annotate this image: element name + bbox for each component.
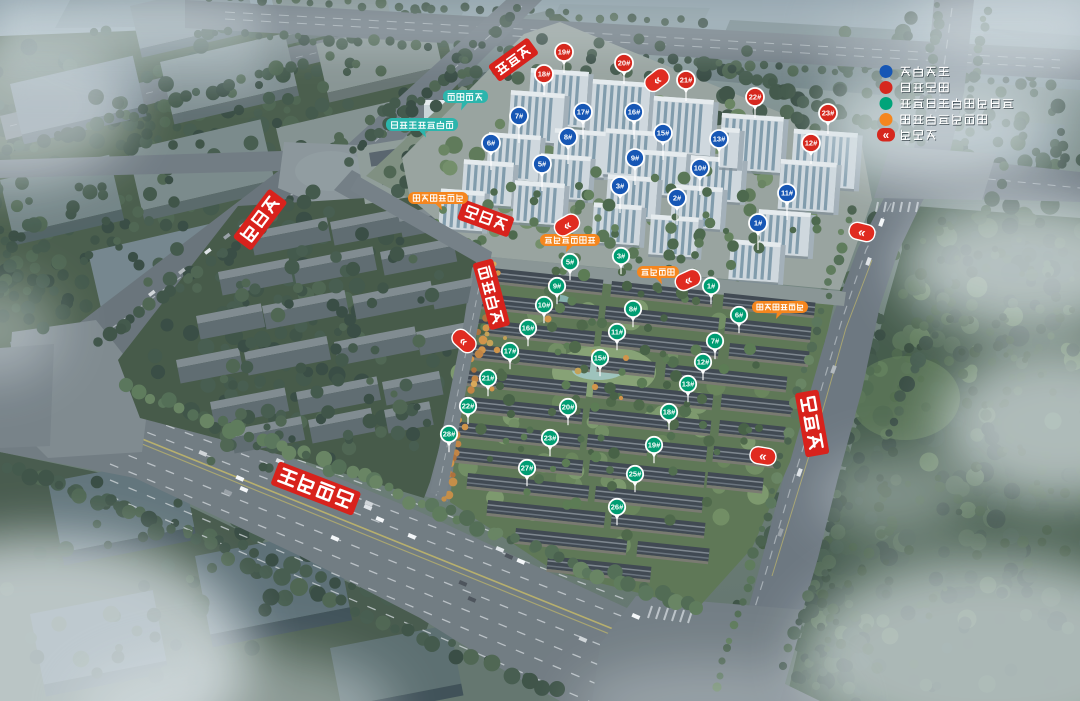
svg-text:19#: 19#: [648, 441, 661, 450]
svg-text:15#: 15#: [657, 129, 670, 138]
svg-text:25#: 25#: [629, 470, 642, 479]
svg-text:6#: 6#: [735, 311, 744, 320]
svg-text:3#: 3#: [616, 182, 625, 191]
svg-text:13#: 13#: [682, 380, 695, 389]
svg-text:22#: 22#: [749, 93, 762, 102]
svg-text:12#: 12#: [697, 358, 710, 367]
svg-text:20#: 20#: [618, 59, 631, 68]
svg-text:18#: 18#: [538, 70, 551, 79]
svg-text:19#: 19#: [558, 48, 571, 57]
svg-text:9#: 9#: [553, 282, 562, 291]
svg-text:3#: 3#: [617, 252, 626, 261]
svg-text:8#: 8#: [564, 133, 573, 142]
svg-text:7#: 7#: [515, 112, 524, 121]
svg-text:5#: 5#: [538, 160, 547, 169]
svg-text:10#: 10#: [694, 164, 707, 173]
svg-text:9#: 9#: [631, 154, 640, 163]
svg-text:21#: 21#: [482, 374, 495, 383]
svg-text:15#: 15#: [594, 354, 607, 363]
svg-text:12#: 12#: [805, 139, 818, 148]
svg-text:1#: 1#: [754, 219, 763, 228]
svg-text:11#: 11#: [781, 189, 794, 198]
svg-text:«: «: [883, 130, 889, 142]
svg-text:23#: 23#: [822, 109, 835, 118]
svg-text:8#: 8#: [629, 305, 638, 314]
svg-text:16#: 16#: [522, 324, 535, 333]
svg-text:7#: 7#: [711, 337, 720, 346]
svg-text:18#: 18#: [663, 408, 676, 417]
svg-text:20#: 20#: [562, 403, 575, 412]
svg-text:28#: 28#: [443, 430, 456, 439]
svg-text:1#: 1#: [707, 282, 716, 291]
svg-text:22#: 22#: [462, 402, 475, 411]
svg-text:17#: 17#: [504, 347, 517, 356]
svg-text:16#: 16#: [628, 108, 641, 117]
svg-text:2#: 2#: [673, 194, 682, 203]
svg-text:10#: 10#: [538, 301, 551, 310]
svg-text:27#: 27#: [521, 464, 534, 473]
svg-text:26#: 26#: [611, 503, 624, 512]
svg-text:23#: 23#: [544, 434, 557, 443]
svg-text:11#: 11#: [611, 328, 624, 337]
svg-text:17#: 17#: [577, 108, 590, 117]
svg-text:21#: 21#: [680, 76, 693, 85]
svg-text:13#: 13#: [713, 135, 726, 144]
svg-text:5#: 5#: [566, 258, 575, 267]
svg-text:6#: 6#: [487, 139, 496, 148]
